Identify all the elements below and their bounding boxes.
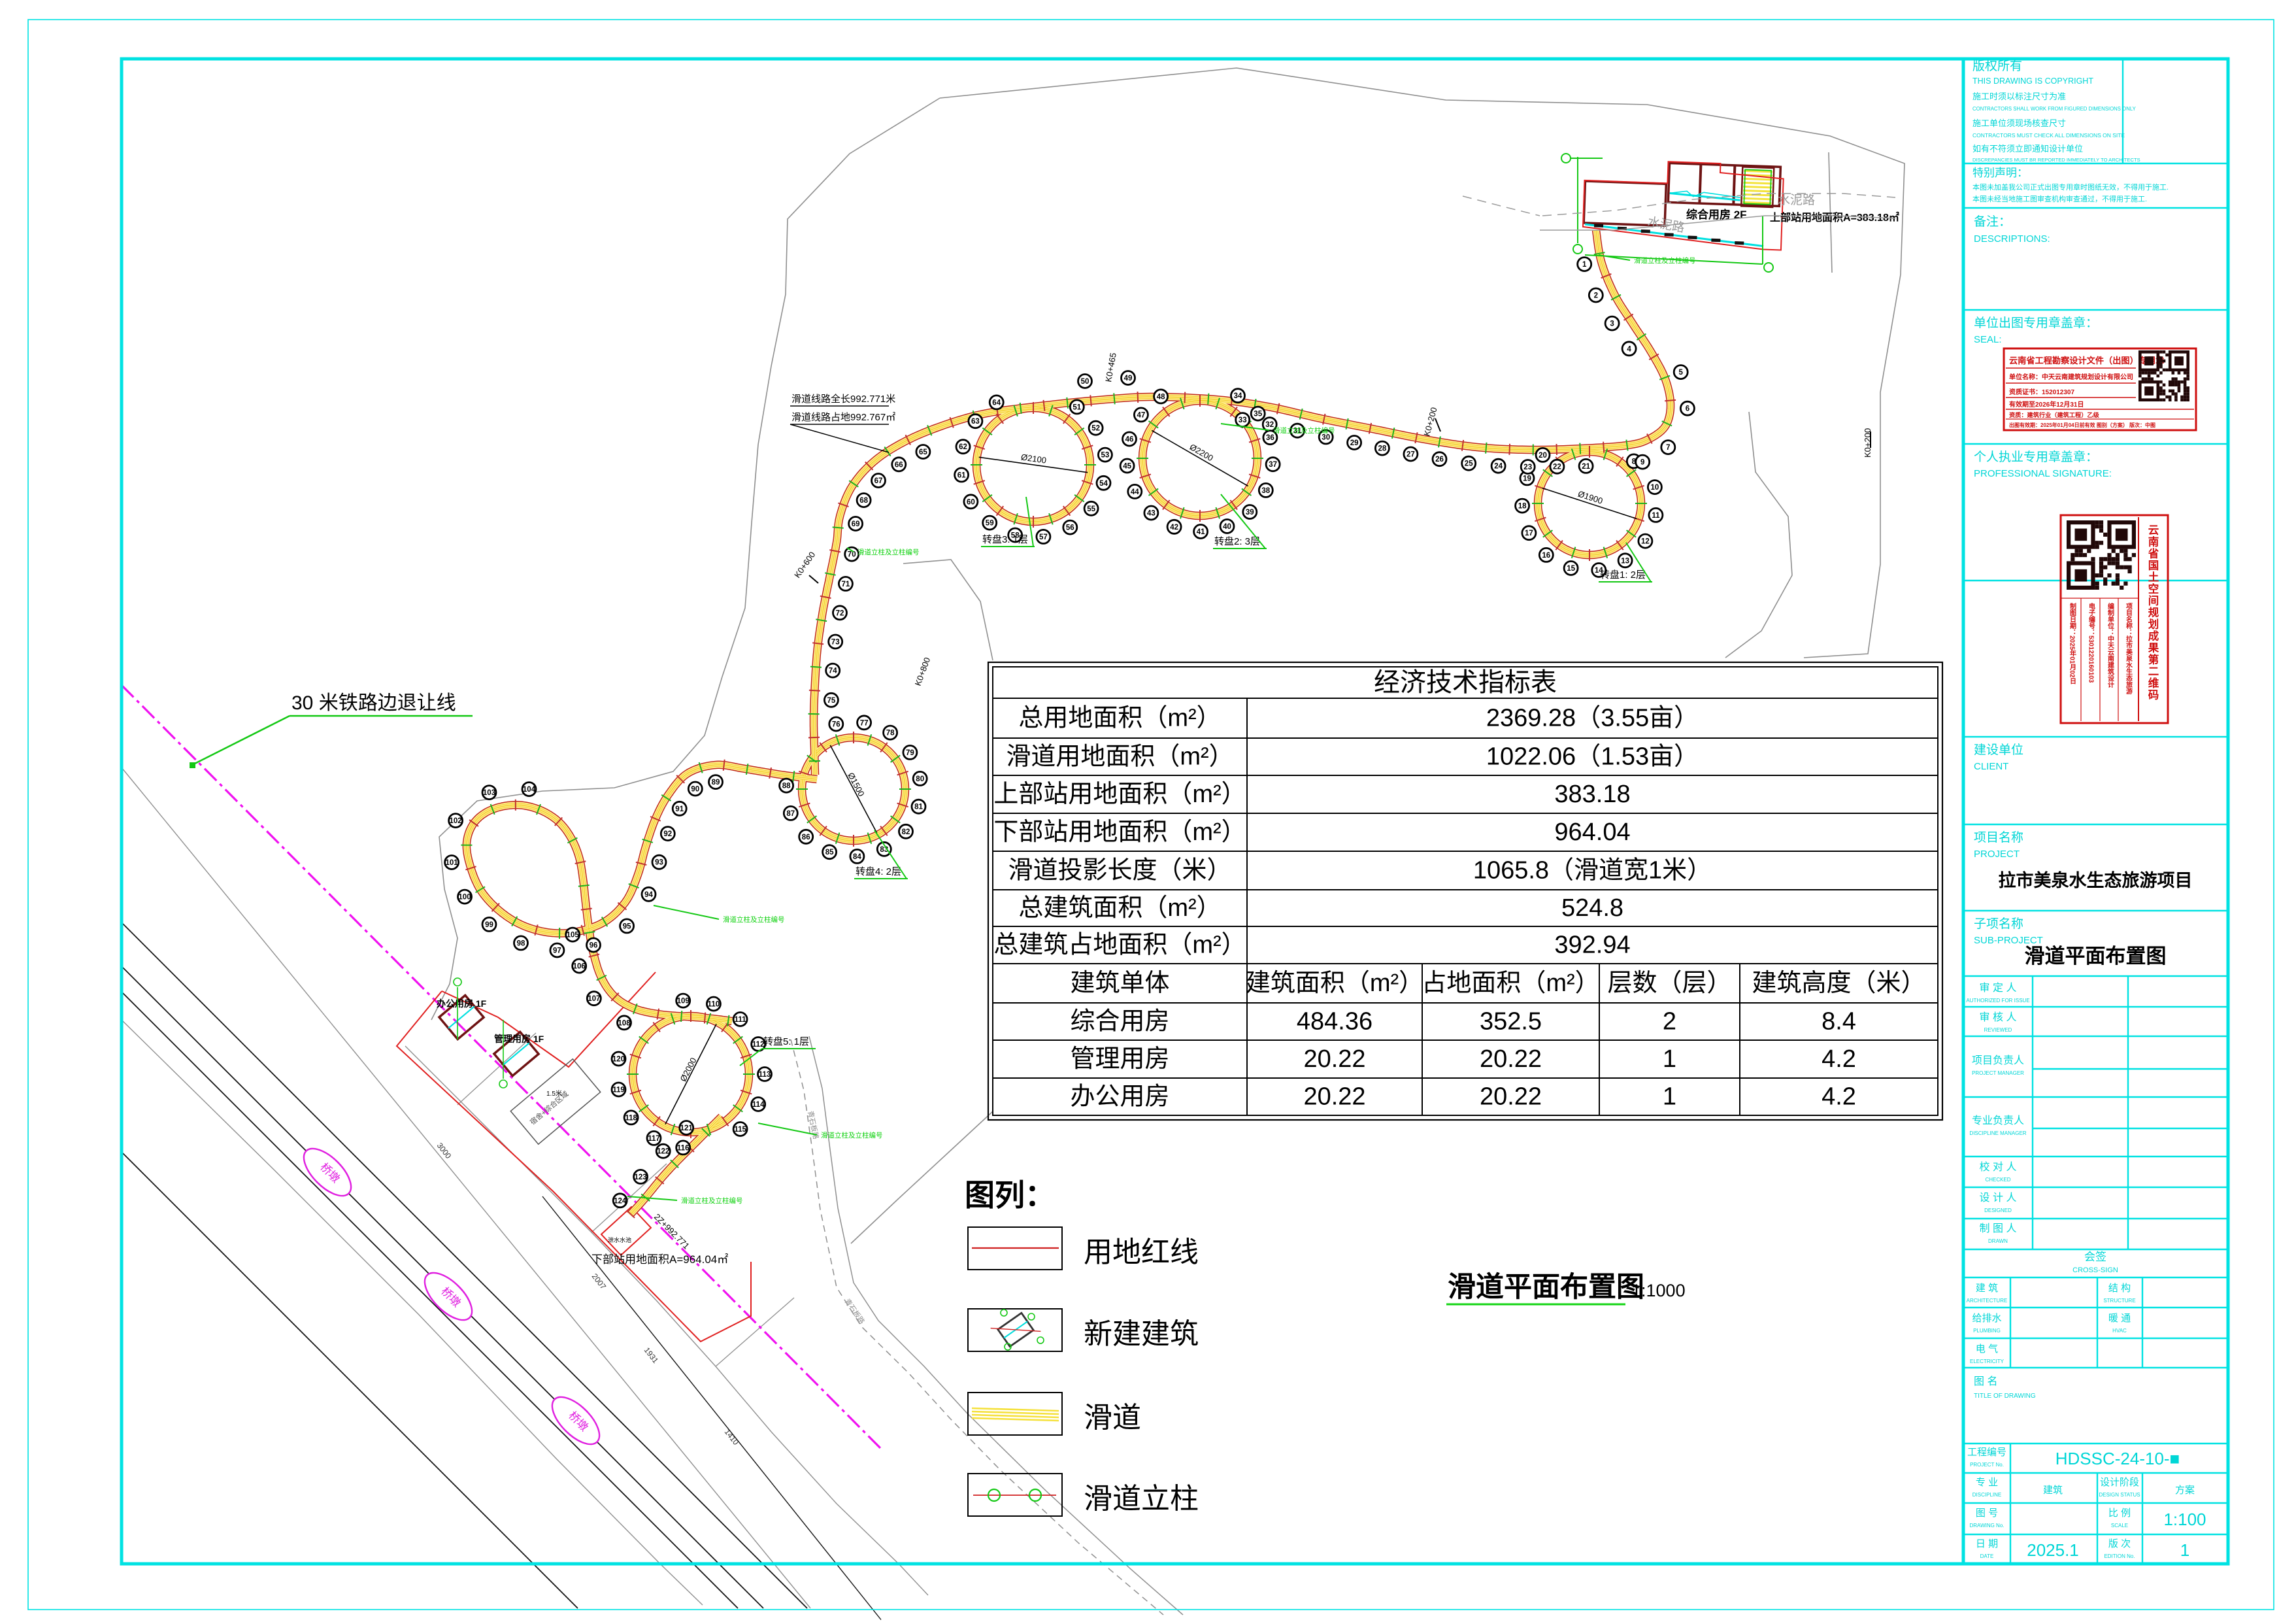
svg-text:SEAL:: SEAL:: [1974, 334, 2002, 345]
svg-text:PROJECT No.: PROJECT No.: [1970, 1462, 2004, 1468]
svg-text:本图未经当地施工图审查机构审查通过，不得用于施工.: 本图未经当地施工图审查机构审查通过，不得用于施工.: [1972, 194, 2147, 203]
svg-text:转盘3: 1层: 转盘3: 1层: [982, 533, 1028, 545]
svg-text:建设单位: 建设单位: [1974, 743, 2023, 757]
svg-text:95: 95: [623, 922, 631, 930]
svg-text:30: 30: [1322, 433, 1330, 441]
svg-text:1:100: 1:100: [2163, 1510, 2206, 1529]
svg-text:117: 117: [648, 1135, 660, 1143]
svg-text:有效期至2026年12月31日: 有效期至2026年12月31日: [2009, 400, 2084, 409]
svg-text:ARCHITECTURE: ARCHITECTURE: [1967, 1298, 2008, 1304]
svg-text:112: 112: [752, 1041, 765, 1049]
svg-text:19: 19: [1523, 475, 1531, 482]
svg-text:90: 90: [691, 786, 699, 794]
svg-text:专 业: 专 业: [1976, 1477, 1998, 1488]
svg-text:方案: 方案: [2175, 1484, 2195, 1496]
svg-text:79: 79: [906, 749, 914, 757]
svg-text:3: 3: [1610, 320, 1614, 328]
svg-text:办公用房: 办公用房: [1070, 1083, 1169, 1111]
svg-text:建筑单体: 建筑单体: [1070, 970, 1169, 997]
svg-text:118: 118: [625, 1114, 637, 1122]
svg-text:PROJECT MANAGER: PROJECT MANAGER: [1972, 1070, 2024, 1076]
svg-text:56: 56: [1066, 524, 1074, 532]
svg-text:91: 91: [675, 805, 684, 813]
svg-text:116: 116: [677, 1144, 690, 1152]
svg-text:99: 99: [485, 921, 493, 929]
svg-text:滑道立柱及立柱编号: 滑道立柱及立柱编号: [1273, 426, 1335, 435]
svg-text:124: 124: [614, 1197, 627, 1205]
svg-text:61: 61: [957, 471, 966, 479]
svg-text:综合用房 2F: 综合用房 2F: [1686, 208, 1747, 221]
svg-text:33: 33: [1239, 416, 1247, 424]
svg-text:106: 106: [573, 963, 586, 971]
svg-text:CHECKED: CHECKED: [1985, 1177, 2010, 1183]
svg-text:AUTHORIZED FOR ISSUE: AUTHORIZED FOR ISSUE: [1966, 998, 2029, 1004]
svg-text:22: 22: [1553, 464, 1561, 471]
svg-text:管理用房: 管理用房: [1070, 1045, 1169, 1073]
svg-text:20.22: 20.22: [1480, 1083, 1542, 1111]
svg-text:设计阶段: 设计阶段: [2100, 1477, 2139, 1488]
svg-text:图 名: 图 名: [1974, 1376, 1997, 1387]
svg-text:39: 39: [1246, 509, 1254, 516]
svg-text:版权所有: 版权所有: [1972, 59, 2022, 73]
svg-text:1: 1: [1582, 261, 1587, 269]
svg-text:DISCREPANCIES MUST BR REPORTED: DISCREPANCIES MUST BR REPORTED IMMEDIATE…: [1972, 157, 2140, 163]
svg-text:63: 63: [971, 418, 980, 426]
svg-text:64: 64: [992, 399, 1001, 407]
svg-text:1022.06（1.53亩）: 1022.06（1.53亩）: [1486, 743, 1699, 771]
svg-text:96: 96: [590, 942, 598, 950]
svg-text:占地面积（m²）: 占地面积（m²）: [1422, 970, 1599, 997]
svg-text:37: 37: [1269, 461, 1277, 469]
svg-text:78: 78: [886, 730, 895, 737]
svg-text:16: 16: [1542, 552, 1550, 560]
svg-text:51: 51: [1073, 403, 1081, 411]
svg-text:校 对 人: 校 对 人: [1980, 1161, 2017, 1173]
svg-text:53: 53: [1101, 452, 1110, 460]
svg-text:1: 1: [1663, 1083, 1676, 1111]
svg-text:1.5米: 1.5米: [546, 1089, 562, 1098]
svg-text:101: 101: [446, 859, 459, 867]
svg-text:上部站用地面积（m²）: 上部站用地面积（m²）: [993, 781, 1246, 808]
svg-text:383.18: 383.18: [1554, 781, 1630, 808]
svg-text:20.22: 20.22: [1303, 1045, 1365, 1073]
svg-text:74: 74: [829, 667, 837, 675]
svg-text:拉市美泉水生态旅游项目: 拉市美泉水生态旅游项目: [1999, 870, 2193, 890]
svg-text:SCALE: SCALE: [2111, 1523, 2128, 1529]
svg-text:964.04: 964.04: [1554, 819, 1630, 846]
svg-text:352.5: 352.5: [1480, 1008, 1542, 1036]
svg-text:35: 35: [1254, 411, 1262, 418]
svg-text:48: 48: [1157, 393, 1165, 401]
svg-text:82: 82: [902, 828, 910, 836]
svg-text:EDITION No.: EDITION No.: [2104, 1553, 2135, 1559]
svg-text:施工单位须现场核查尺寸: 施工单位须现场核查尺寸: [1972, 118, 2066, 128]
svg-text:电 气: 电 气: [1976, 1343, 1998, 1355]
svg-text:滑道立柱及立柱编号: 滑道立柱及立柱编号: [681, 1196, 743, 1205]
svg-text:15: 15: [1567, 565, 1575, 573]
svg-text:用地红线: 用地红线: [1084, 1236, 1199, 1268]
svg-text:38: 38: [1261, 487, 1270, 495]
svg-text:109: 109: [677, 998, 690, 1005]
svg-text:管理用房 1F: 管理用房 1F: [494, 1034, 544, 1044]
svg-text:PLUMBING: PLUMBING: [1973, 1328, 2001, 1334]
svg-text:47: 47: [1137, 411, 1146, 419]
svg-text:120: 120: [612, 1056, 625, 1064]
svg-text:PROJECT: PROJECT: [1974, 849, 2020, 860]
svg-text:本图未加盖我公司正式出图专用章时图纸无效，不得用于施工.: 本图未加盖我公司正式出图专用章时图纸无效，不得用于施工.: [1972, 182, 2169, 192]
svg-text:46: 46: [1125, 436, 1134, 444]
svg-text:会签: 会签: [2084, 1251, 2106, 1263]
svg-text:办公用房 1F: 办公用房 1F: [437, 998, 487, 1009]
svg-text:92: 92: [663, 830, 672, 838]
svg-text:45: 45: [1123, 463, 1131, 471]
svg-text:111: 111: [735, 1016, 747, 1024]
svg-text:项目名称: 项目名称: [1974, 830, 2023, 845]
svg-text:转盘1: 2层: 转盘1: 2层: [1600, 569, 1646, 581]
svg-text:CROSS-SIGN: CROSS-SIGN: [2072, 1266, 2118, 1274]
svg-text:87: 87: [786, 810, 795, 818]
svg-text:资质证书：152012307: 资质证书：152012307: [2009, 388, 2074, 396]
svg-text:10: 10: [1651, 484, 1659, 492]
svg-text:滑道立柱及立柱编号: 滑道立柱及立柱编号: [857, 548, 920, 556]
svg-text:审 核 人: 审 核 人: [1980, 1011, 2017, 1023]
svg-text:103: 103: [483, 789, 495, 797]
svg-text:97: 97: [553, 947, 561, 955]
svg-text:9: 9: [1640, 459, 1644, 467]
svg-text:20.22: 20.22: [1303, 1083, 1365, 1111]
svg-text:ELECTRICITY: ELECTRICITY: [1970, 1359, 2005, 1364]
svg-text:66: 66: [895, 461, 903, 469]
svg-text:综合用房: 综合用房: [1070, 1008, 1169, 1036]
svg-text:85: 85: [825, 849, 834, 856]
svg-text:113: 113: [759, 1071, 771, 1079]
svg-text:1: 1: [1663, 1045, 1676, 1073]
svg-text:滑道: 滑道: [1084, 1402, 1141, 1434]
svg-text:69: 69: [852, 520, 860, 528]
svg-text:新建建筑: 新建建筑: [1084, 1318, 1199, 1350]
svg-text:49: 49: [1124, 375, 1133, 382]
svg-text:44: 44: [1131, 488, 1139, 496]
svg-text:105: 105: [567, 932, 580, 939]
svg-text:6: 6: [1686, 405, 1689, 413]
svg-text:泄水水池: 泄水水池: [608, 1236, 631, 1243]
svg-text:41: 41: [1197, 528, 1205, 536]
svg-text:55: 55: [1087, 505, 1095, 513]
svg-text:CONTRACTORS SHALL WORK FROM FI: CONTRACTORS SHALL WORK FROM FIGURED DIME…: [1972, 106, 2137, 112]
svg-text:84: 84: [853, 853, 861, 861]
svg-text:子项名称: 子项名称: [1974, 917, 2023, 931]
svg-text:版 次: 版 次: [2108, 1538, 2131, 1549]
svg-text:89: 89: [712, 779, 720, 786]
svg-text:如有不符须立即通知设计单位: 如有不符须立即通知设计单位: [1972, 144, 2083, 154]
svg-text:滑道线路全长992.771米: 滑道线路全长992.771米: [791, 393, 895, 405]
svg-text:工程编号: 工程编号: [1967, 1447, 2006, 1458]
svg-text:93: 93: [655, 859, 663, 867]
svg-text:60: 60: [967, 498, 975, 506]
svg-text:滑道平面布置图: 滑道平面布置图: [2025, 945, 2167, 968]
svg-text:日 期: 日 期: [1976, 1538, 1998, 1549]
svg-text:8.4: 8.4: [1822, 1008, 1856, 1036]
svg-text:建筑: 建筑: [2043, 1485, 2063, 1496]
svg-text:特别声明：: 特别声明：: [1972, 167, 2028, 179]
svg-text:建筑高度（米）: 建筑高度（米）: [1752, 970, 1925, 997]
svg-text:62: 62: [959, 443, 967, 451]
svg-text:57: 57: [1039, 533, 1048, 541]
svg-text:滑道立柱及立柱编号: 滑道立柱及立柱编号: [723, 915, 785, 924]
svg-text:98: 98: [517, 939, 525, 947]
svg-text:电子编号：5301220160103: 电子编号：5301220160103: [2088, 602, 2095, 683]
svg-text:TITLE OF DRAWING: TITLE OF DRAWING: [1974, 1393, 2036, 1400]
svg-text:21: 21: [1582, 463, 1590, 471]
svg-text:119: 119: [612, 1087, 625, 1094]
svg-text:总建筑占地面积（m²）: 总建筑占地面积（m²）: [993, 932, 1246, 959]
svg-text:20: 20: [1539, 452, 1547, 460]
svg-text:65: 65: [919, 448, 927, 456]
svg-text:下部站用地面积（m²）: 下部站用地面积（m²）: [993, 819, 1246, 846]
svg-text:STRUCTURE: STRUCTURE: [2103, 1298, 2135, 1304]
svg-text:滑道线路占地992.767㎡: 滑道线路占地992.767㎡: [791, 412, 895, 423]
svg-text:5: 5: [1678, 369, 1683, 377]
svg-text:76: 76: [832, 721, 840, 729]
svg-text:4.2: 4.2: [1822, 1083, 1856, 1111]
svg-text:滑道立柱: 滑道立柱: [1084, 1483, 1199, 1515]
svg-text:100: 100: [458, 894, 471, 902]
svg-text:52: 52: [1091, 425, 1100, 433]
svg-text:81: 81: [914, 803, 923, 811]
svg-text:CLIENT: CLIENT: [1974, 761, 2008, 772]
svg-text:滑道平面布置图: 滑道平面布置图: [1448, 1272, 1644, 1303]
svg-text:392.94: 392.94: [1554, 932, 1630, 959]
svg-text:单位名称：中天云南建筑规划设计有限公司: 单位名称：中天云南建筑规划设计有限公司: [2009, 373, 2133, 381]
svg-text:经济技术指标表: 经济技术指标表: [1374, 668, 1557, 697]
svg-text:75: 75: [827, 697, 836, 705]
svg-text:项目负责人: 项目负责人: [1972, 1055, 2024, 1066]
svg-text:审 定 人: 审 定 人: [1980, 982, 2017, 994]
svg-text:备注：: 备注：: [1974, 214, 2011, 229]
svg-text:1:1000: 1:1000: [1631, 1281, 1686, 1300]
svg-text:水泥路: 水泥路: [1778, 193, 1815, 207]
svg-text:72: 72: [836, 609, 844, 617]
svg-text:29: 29: [1350, 439, 1359, 447]
svg-text:104: 104: [523, 786, 536, 794]
svg-text:滑道用地面积（m²）: 滑道用地面积（m²）: [1006, 743, 1233, 771]
svg-text:122: 122: [657, 1148, 669, 1156]
svg-text:20.22: 20.22: [1480, 1045, 1542, 1073]
svg-text:68: 68: [859, 497, 868, 505]
svg-text:1: 1: [2180, 1540, 2189, 1560]
svg-text:DATE: DATE: [1980, 1553, 1994, 1559]
svg-text:524.8: 524.8: [1561, 894, 1623, 922]
svg-text:图列：: 图列：: [965, 1178, 1055, 1212]
svg-text:40: 40: [1223, 523, 1231, 531]
svg-text:94: 94: [644, 891, 653, 899]
svg-text:出图有效期：2025年01月04日前有效 图别（方案） 版: 出图有效期：2025年01月04日前有效 图别（方案） 版次：中图: [2009, 422, 2155, 428]
svg-text:107: 107: [588, 995, 600, 1003]
svg-text:2: 2: [1663, 1008, 1676, 1036]
svg-text:77: 77: [860, 719, 869, 727]
svg-text:THIS DRAWING IS COPYRIGHT: THIS DRAWING IS COPYRIGHT: [1972, 76, 2093, 86]
svg-text:26: 26: [1435, 456, 1444, 464]
svg-text:88: 88: [782, 783, 791, 790]
svg-text:专业负责人: 专业负责人: [1972, 1115, 2024, 1126]
svg-text:DESIGN STATUS: DESIGN STATUS: [2099, 1492, 2140, 1498]
svg-text:4: 4: [1627, 345, 1631, 353]
svg-text:54: 54: [1099, 480, 1108, 488]
svg-text:121: 121: [680, 1124, 693, 1132]
svg-text:2025.1: 2025.1: [2027, 1540, 2079, 1560]
svg-text:34: 34: [1234, 392, 1242, 400]
svg-text:70: 70: [848, 551, 856, 559]
svg-text:施工时须以标注尺寸为准: 施工时须以标注尺寸为准: [1972, 92, 2066, 101]
svg-text:DESCRIPTIONS:: DESCRIPTIONS:: [1974, 233, 2050, 245]
svg-text:43: 43: [1147, 510, 1156, 518]
svg-text:114: 114: [752, 1101, 765, 1109]
svg-text:DISCIPLINE MANAGER: DISCIPLINE MANAGER: [1969, 1130, 2026, 1136]
svg-text:总建筑面积（m²）: 总建筑面积（m²）: [1018, 894, 1221, 922]
svg-text:转盘4: 2层: 转盘4: 2层: [856, 866, 901, 877]
svg-text:DRAWING No.: DRAWING No.: [1969, 1523, 2004, 1529]
svg-text:42: 42: [1170, 524, 1178, 532]
svg-text:18: 18: [1518, 503, 1527, 511]
svg-text:71: 71: [842, 581, 850, 588]
svg-text:HVAC: HVAC: [2112, 1328, 2127, 1334]
svg-text:转盘2: 3层: 转盘2: 3层: [1214, 535, 1260, 547]
svg-text:图 号: 图 号: [1976, 1508, 1998, 1519]
svg-text:云南省国土空间规划成果第二维码: 云南省国土空间规划成果第二维码: [2146, 524, 2159, 701]
svg-text:23: 23: [1523, 464, 1532, 471]
svg-text:总用地面积（m²）: 总用地面积（m²）: [1018, 705, 1221, 732]
svg-text:7: 7: [1666, 444, 1670, 452]
svg-text:110: 110: [708, 1001, 720, 1009]
svg-text:DISCIPLINE: DISCIPLINE: [1972, 1492, 2001, 1498]
svg-text:4.2: 4.2: [1822, 1045, 1856, 1073]
svg-text:59: 59: [986, 520, 994, 528]
svg-text:50: 50: [1081, 378, 1090, 386]
svg-text:86: 86: [802, 834, 810, 841]
svg-text:108: 108: [618, 1019, 631, 1027]
svg-text:PROFESSIONAL SIGNATURE:: PROFESSIONAL SIGNATURE:: [1974, 468, 2112, 479]
svg-text:下部站用地面积A=964.04㎡: 下部站用地面积A=964.04㎡: [591, 1253, 728, 1266]
svg-text:层数（层）: 层数（层）: [1607, 970, 1731, 997]
svg-text:11: 11: [1652, 512, 1660, 520]
svg-text:12: 12: [1641, 538, 1650, 546]
svg-text:27: 27: [1406, 451, 1415, 459]
svg-text:制 图 人: 制 图 人: [1980, 1223, 2017, 1234]
svg-text:个人执业专用章盖章：: 个人执业专用章盖章：: [1974, 450, 2098, 464]
svg-text:36: 36: [1266, 434, 1274, 442]
svg-text:建筑面积（m²）: 建筑面积（m²）: [1246, 970, 1423, 997]
svg-text:滑道立柱及立柱编号: 滑道立柱及立柱编号: [821, 1131, 883, 1140]
svg-text:建 筑: 建 筑: [1976, 1283, 1998, 1294]
svg-text:DESIGNED: DESIGNED: [1984, 1208, 2012, 1213]
svg-text:67: 67: [874, 477, 883, 485]
svg-text:123: 123: [635, 1174, 647, 1181]
svg-text:滑道投影长度（米）: 滑道投影长度（米）: [1008, 857, 1231, 885]
svg-text:17: 17: [1525, 530, 1533, 537]
svg-text:102: 102: [450, 817, 462, 825]
svg-text:比 例: 比 例: [2108, 1508, 2131, 1519]
svg-text:115: 115: [734, 1126, 746, 1134]
svg-text:30 米铁路边退让线: 30 米铁路边退让线: [291, 692, 456, 714]
svg-text:资质：建筑行业（建筑工程）乙级: 资质：建筑行业（建筑工程）乙级: [2009, 411, 2100, 418]
svg-text:80: 80: [916, 775, 924, 783]
svg-text:转盘5: 1层: 转盘5: 1层: [763, 1036, 809, 1047]
svg-text:单位出图专用章盖章：: 单位出图专用章盖章：: [1974, 316, 2098, 330]
svg-text:REVIEWED: REVIEWED: [1984, 1027, 2012, 1033]
svg-text:HDSSC-24-10-■: HDSSC-24-10-■: [2055, 1449, 2180, 1468]
svg-text:CONTRACTORS MUST CHECK ALL DIM: CONTRACTORS MUST CHECK ALL DIMENSIONS ON…: [1972, 132, 2125, 139]
svg-text:DRAWN: DRAWN: [1988, 1238, 2008, 1244]
svg-text:28: 28: [1378, 445, 1387, 453]
svg-text:结 构: 结 构: [2108, 1283, 2131, 1294]
svg-text:2: 2: [1594, 292, 1598, 300]
svg-text:13: 13: [1621, 557, 1629, 565]
svg-text:73: 73: [831, 639, 840, 647]
svg-text:暖 通: 暖 通: [2108, 1313, 2131, 1324]
svg-text:2369.28（3.55亩）: 2369.28（3.55亩）: [1486, 705, 1699, 732]
svg-text:1065.8（滑道宽1米）: 1065.8（滑道宽1米）: [1473, 857, 1712, 885]
svg-text:24: 24: [1494, 463, 1503, 471]
svg-text:484.36: 484.36: [1297, 1008, 1373, 1036]
svg-text:25: 25: [1465, 460, 1473, 468]
svg-text:设 计 人: 设 计 人: [1980, 1192, 2017, 1204]
svg-text:给排水: 给排水: [1972, 1313, 2001, 1324]
